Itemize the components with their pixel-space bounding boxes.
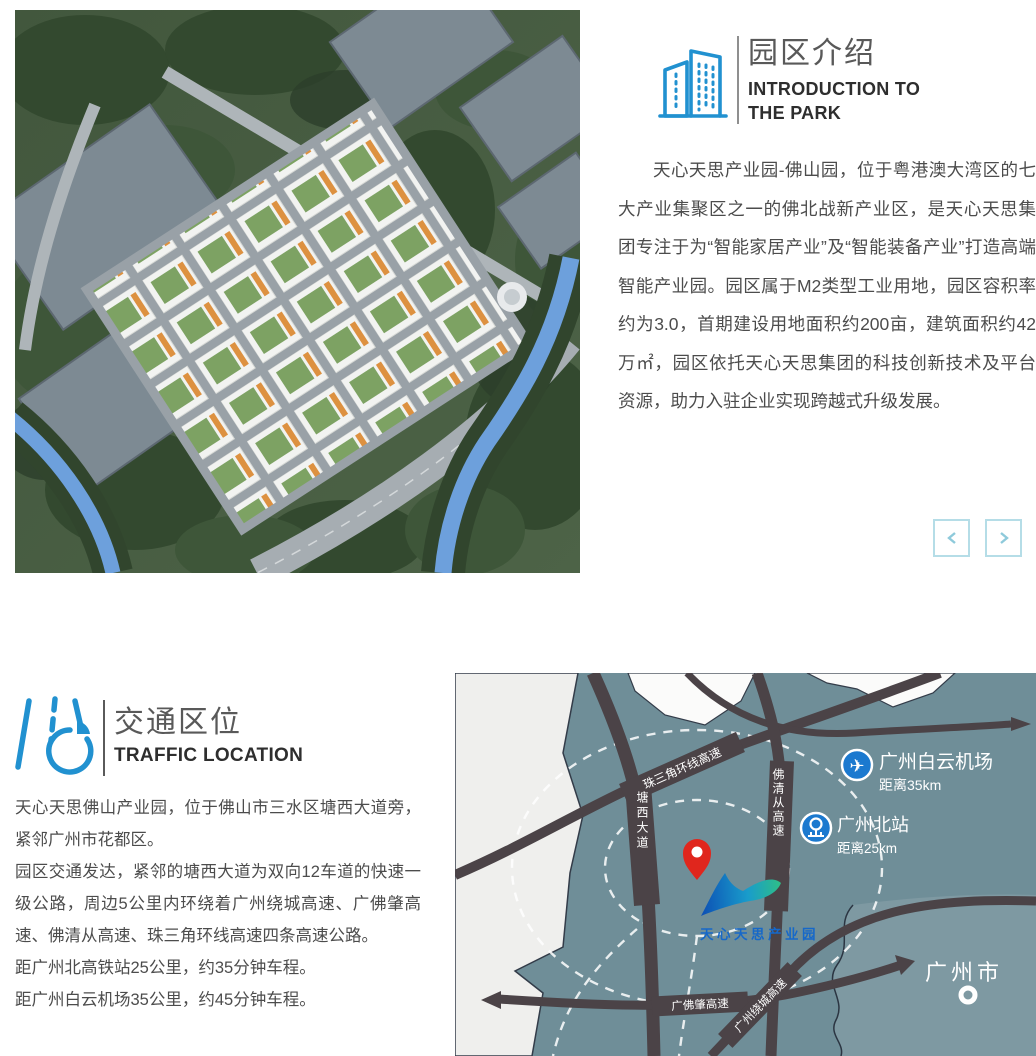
park-map-label: 天心天思产业园 [700, 926, 819, 942]
carousel-prev-button[interactable] [933, 519, 970, 557]
carousel-next-button[interactable] [985, 519, 1022, 557]
city-name: 广州市 [925, 960, 1003, 985]
buildings-icon [657, 38, 729, 122]
traffic-paragraph: 距广州白云机场35公里，约45分钟车程。 [15, 984, 421, 1016]
header-divider [103, 700, 105, 776]
road-location-icon [13, 693, 99, 779]
traffic-paragraph: 距广州北高铁站25公里，约35分钟车程。 [15, 952, 421, 984]
station-name: 广州北站 [837, 815, 909, 835]
traffic-description: 天心天思佛山产业园，位于佛山市三水区塘西大道旁，紧邻广州市花都区。 园区交通发达… [15, 792, 421, 1016]
intro-section-title: 园区介绍 [748, 28, 876, 72]
airport-icon: ✈ [842, 750, 872, 780]
traffic-paragraph: 天心天思佛山产业园，位于佛山市三水区塘西大道旁，紧邻广州市花都区。 [15, 792, 421, 856]
header-divider [737, 36, 739, 124]
chevron-left-icon [946, 531, 958, 545]
road-label-foqingcong: 佛清从高速 [771, 768, 785, 838]
airport-distance: 距离35km [879, 777, 941, 793]
park-aerial-image [15, 10, 580, 573]
page: 园区介绍 INTRODUCTION TO THE PARK 天心天思产业园-佛山… [0, 0, 1036, 1056]
svg-text:✈: ✈ [849, 756, 864, 776]
intro-section-subtitle: INTRODUCTION TO THE PARK [748, 78, 948, 126]
chevron-right-icon [998, 531, 1010, 545]
road-label-tangxi: 塘西大道 [635, 790, 649, 851]
intro-paragraph: 天心天思产业园-佛山园，位于粤港澳大湾区的七大产业集聚区之一的佛北战新产业区，是… [618, 151, 1036, 421]
airport-name: 广州白云机场 [879, 751, 993, 773]
traffic-section-subtitle: TRAFFIC LOCATION [114, 743, 303, 768]
traffic-section-title: 交通区位 [114, 697, 242, 741]
railway-station-icon [801, 813, 831, 843]
location-map: 珠三角环线高速 塘西大道 佛清从高速 广佛肇高速 广州绕城高速 天心天思产业园 … [455, 673, 1036, 1056]
traffic-paragraph: 园区交通发达，紧邻的塘西大道为双向12车道的快速一级公路，周边5公里内环绕着广州… [15, 856, 421, 952]
station-distance: 距离25km [837, 840, 897, 856]
